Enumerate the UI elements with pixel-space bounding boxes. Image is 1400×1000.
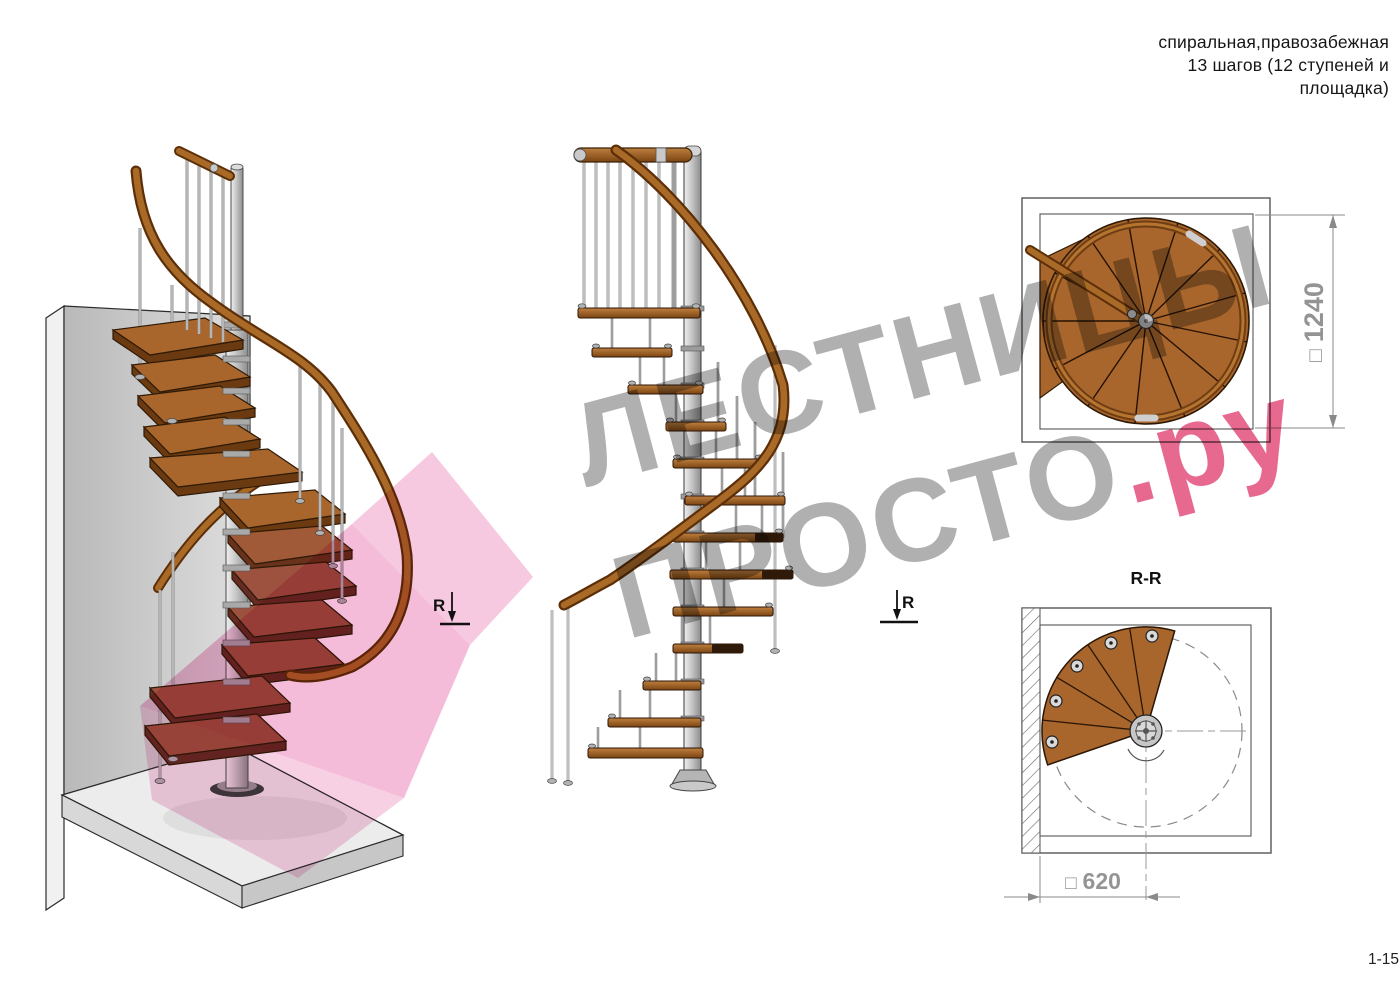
plan-rail-tip [1128,310,1137,319]
dim-arrow-left [1028,893,1040,901]
elevation-rail-ferrule [656,148,666,162]
elevation-rail-cap-left [574,149,586,161]
dim-arrow-up [1329,215,1337,228]
plan-view: □1240 [1022,198,1345,442]
title-line: спиральная,правозабежная [1158,31,1389,54]
section-hub [1130,715,1162,747]
page-number: 1-15 [1368,951,1399,969]
section-marker-right-label: R [902,593,914,612]
column-upper-pole [231,166,243,336]
drawing-canvas: □1240 R-R [0,0,1400,1000]
elevation-base-plate [670,781,716,791]
section-marker-right: R [880,590,918,622]
title-line: площадка) [1158,77,1389,100]
section-dimension-label: □620 [1065,868,1121,894]
drawing-sheet: □1240 R-R [0,0,1400,1000]
section-marker-left-label: R [433,596,445,615]
column-cap [231,164,243,170]
plan-hub-dot [1144,319,1148,323]
section-marker-right-arrowhead [893,609,901,620]
wall-side-face [46,306,64,910]
elevation-view [548,146,794,791]
title-block: спиральная,правозабежная 13 шагов (12 ст… [1158,31,1389,100]
section-title: R-R [1130,568,1161,588]
section-wall-hatch [1022,608,1040,853]
elevation-right-balusters [552,345,783,782]
rail-ferrule [210,164,218,172]
elevation-discs [548,304,793,786]
elevation-right-balusters-highlight [552,345,775,782]
dim-arrow-down [1329,415,1337,428]
dim-arrow-right [1146,893,1158,901]
plan-dimension-label: □1240 [1299,282,1329,362]
section-view: R-R [1004,568,1271,903]
title-line: 13 шагов (12 ступеней и [1158,54,1389,77]
